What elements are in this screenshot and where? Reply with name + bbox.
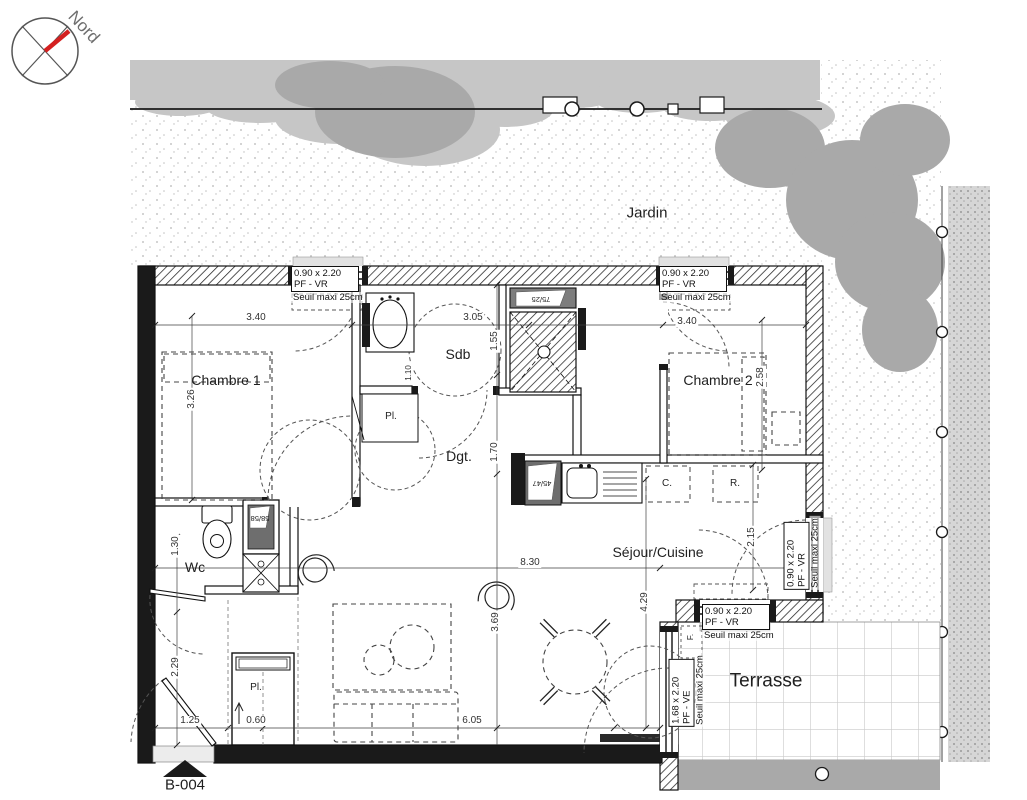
washbasin [366,293,414,352]
bed-chambre2 [669,353,766,455]
dim-closet-depth: 0.60 [244,716,267,726]
room-label-living-kitchen: Séjour/Cuisine [612,545,703,559]
boiler-size-mark: 58/58 [251,514,270,522]
door-type: PF - VE [682,662,693,724]
toilet [202,506,232,558]
nightstand [772,412,800,445]
dim-entry-depth: 2.29 [171,655,181,678]
window-size: 0.90 x 2.20 [705,606,767,617]
window-type: PF - VR [662,279,724,290]
dim-entry-width: 1.25 [178,716,201,726]
room-label-bathroom: Sdb [446,347,471,361]
dim-living-depth-left: 3.69 [491,610,501,633]
room-label-chambre2: Chambre 2 [683,373,752,387]
dim-living-right: 2.15 [747,525,757,548]
entry-arrow-icon [163,760,207,777]
dim-chambre2-width: 3.40 [675,317,698,327]
window-size: 0.90 x 2.20 [662,268,724,279]
unit-ref-label: B-004 [165,778,205,793]
rug [333,604,451,690]
room-label-hallway: Dgt. [446,449,472,463]
oven-size-mark: 45/47 [533,479,552,487]
dim-living-bottom: 6.05 [460,716,483,726]
kitchen-counter [525,461,758,505]
window-size: 0.90 x 2.20 [294,268,356,279]
window-type: PF - VR [294,279,356,290]
window-sill-note: Seuil maxi 25cm [810,516,821,590]
compass-icon [12,18,78,84]
garden-label: Jardin [627,206,668,221]
floor-plan: Nord Jardin Terrasse B-004 Chambre 1 Cha… [0,0,1027,800]
window-type: PF - VR [705,617,767,628]
dining-table [543,630,607,694]
terrace-area [678,622,940,790]
dim-wc-depth: 1.30 [171,534,181,557]
sofa [334,692,458,742]
annotation-window-right: 0.90 x 2.20 PF - VR Seuil maxi 25cm [784,516,821,590]
room-label-wc: Wc [185,560,205,574]
closet-hall-label: Pl. [385,412,397,422]
annotation-window-top-left: 0.90 x 2.20 PF - VR Seuil maxi 25cm [291,266,365,303]
door-size: 1.68 x 2.20 [671,662,682,724]
dim-bathroom-left: 1.10 [405,363,413,383]
fridge-mark: R. [730,479,740,489]
cooker-mark: C. [662,479,672,489]
radiator [578,308,586,350]
f-mark: F. [687,634,695,640]
dim-chambre2-depth: 2.58 [756,365,766,388]
window-sill-note: Seuil maxi 25cm [291,292,365,303]
annotation-door-terrace: 1.68 x 2.20 PF - VE Seuil maxi 25cm [669,653,706,727]
dim-chambre1-depth: 3.26 [187,387,197,410]
terrace-label: Terrasse [730,672,803,691]
annotation-window-top-right: 0.90 x 2.20 PF - VR Seuil maxi 25cm [659,266,733,303]
dining-chairs [540,619,610,704]
annotation-window-terrace-side: 0.90 x 2.20 PF - VR Seuil maxi 25cm [702,604,776,641]
room-label-chambre1: Chambre 1 [191,373,260,387]
shower-size-mark: 75/25 [532,295,551,303]
window-sill-note: Seuil maxi 25cm [659,292,733,303]
plan-drawing [0,0,1027,800]
dim-living-width: 8.30 [518,558,541,568]
compass-needle [45,31,69,51]
dim-living-depth-right: 4.29 [640,590,650,613]
window-size: 0.90 x 2.20 [786,525,797,587]
closet-entry-label: Pl. [250,683,262,693]
door-sill-note: Seuil maxi 25cm [695,653,706,727]
boundary-hedge-right [937,186,991,762]
dim-bathroom-depth: 1.55 [490,329,500,352]
window-sill-note: Seuil maxi 25cm [702,630,776,641]
window-type: PF - VR [797,525,808,587]
dim-bathroom-width: 3.05 [461,313,484,323]
dim-chambre1-width: 3.40 [244,313,267,323]
dim-hallway-depth: 1.70 [490,440,500,463]
